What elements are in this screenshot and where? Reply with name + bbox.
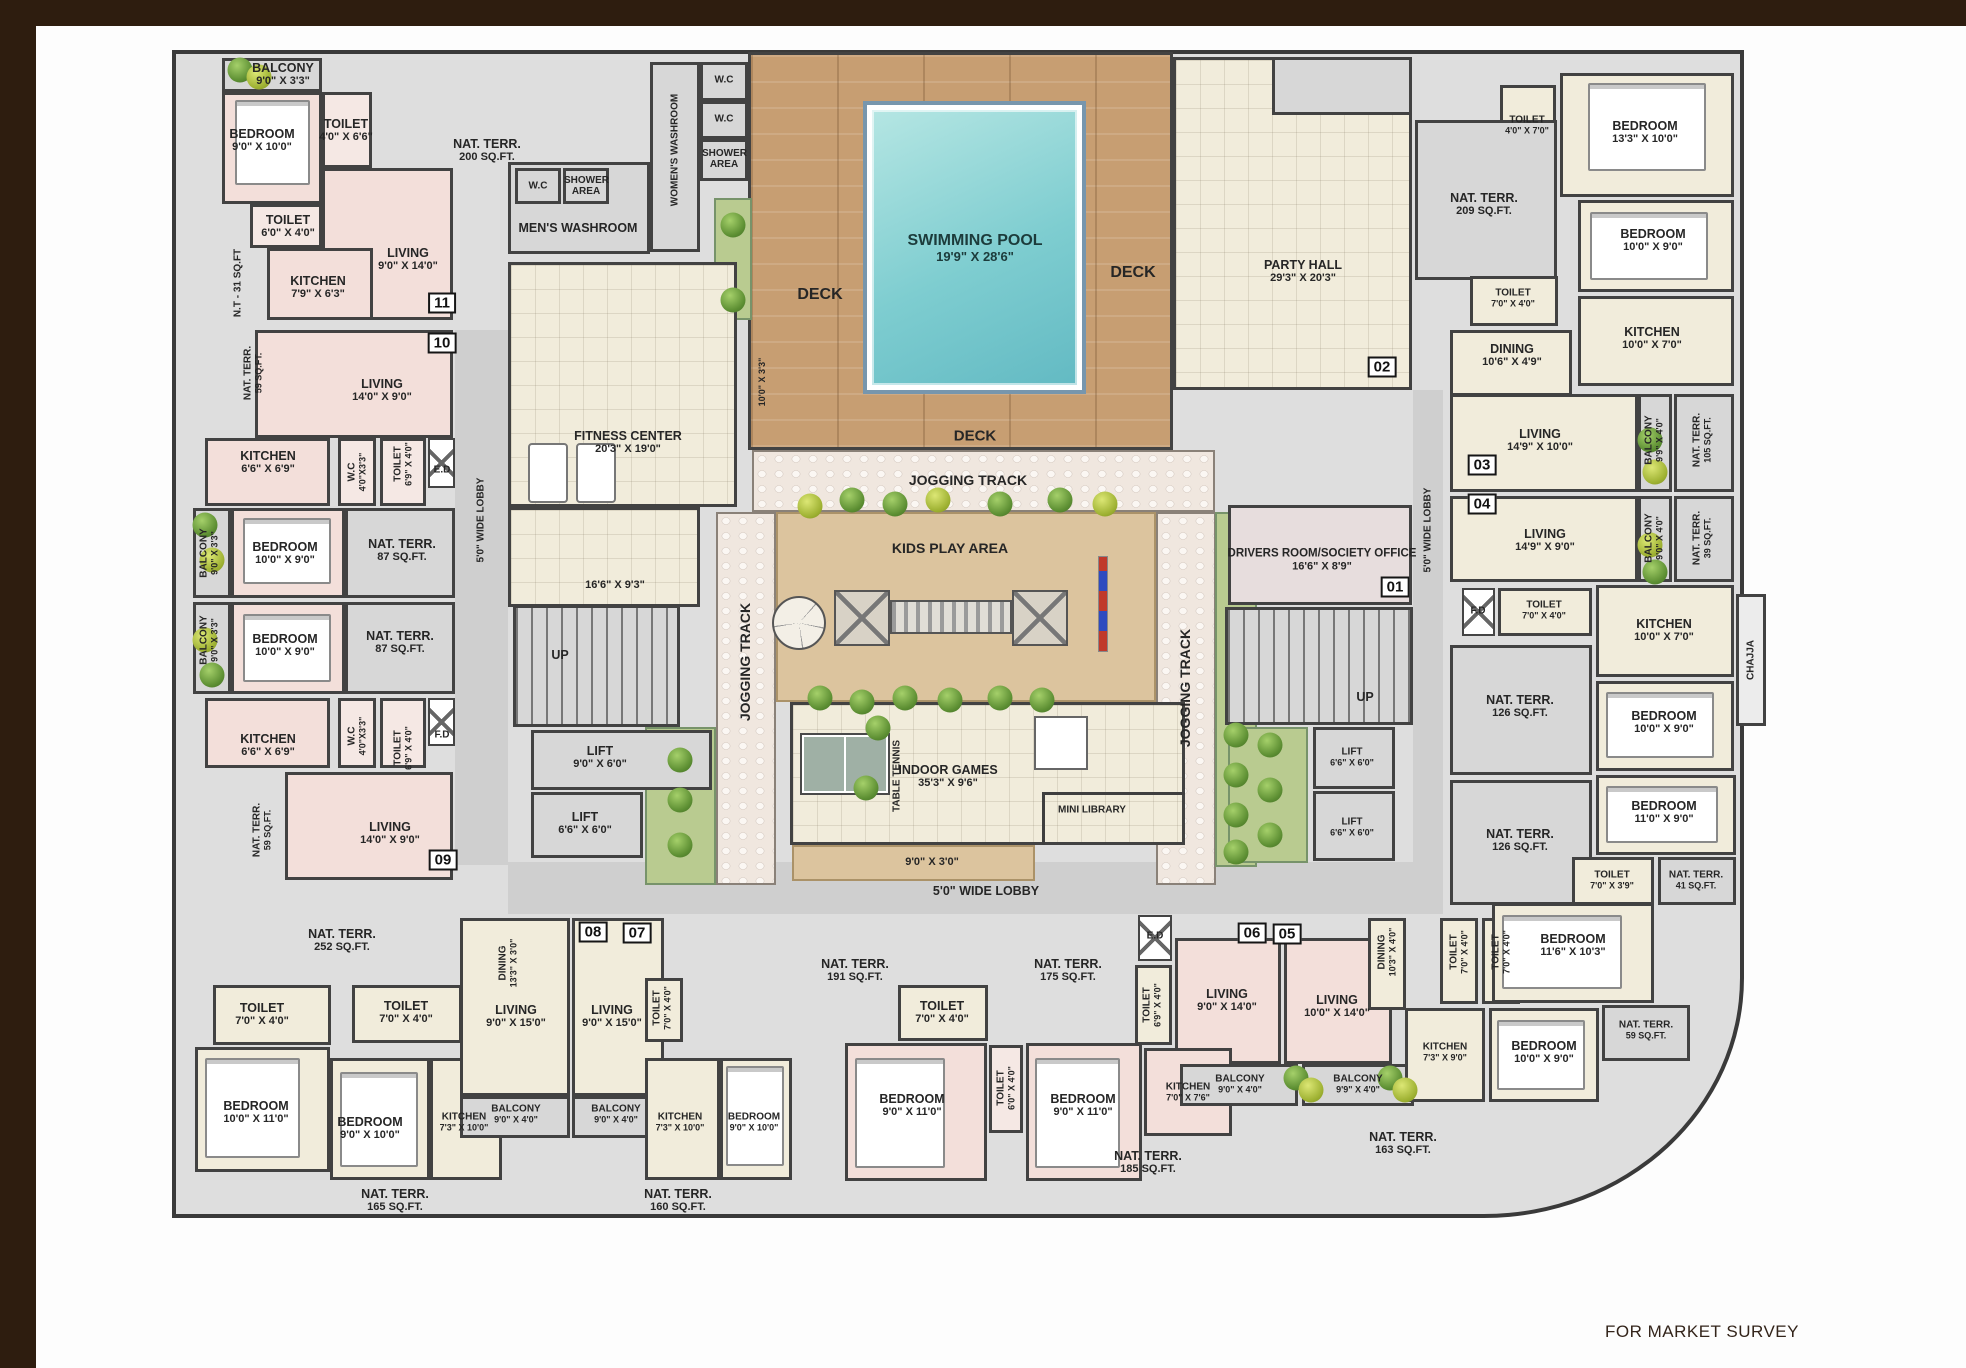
label-toilet: TOILET7'0" X 4'0" bbox=[1491, 287, 1535, 308]
plant-icon bbox=[1030, 688, 1055, 713]
label-nat-terr: NAT. TERR.59 SQ.FT. bbox=[251, 803, 272, 857]
label-toilet: TOILET7'0" X 4'0" bbox=[915, 999, 969, 1025]
label-nat-terr: NAT. TERR.209 SQ.FT. bbox=[1450, 191, 1518, 217]
label-kitchen: KITCHEN7'9" X 6'3" bbox=[290, 274, 346, 300]
plant-icon bbox=[926, 488, 951, 513]
label-living: LIVING10'0" X 14'0" bbox=[1304, 993, 1370, 1019]
label-nat-terr: NAT. TERR.59 SQ.FT. bbox=[1619, 1019, 1673, 1040]
label-living: LIVING14'9" X 10'0" bbox=[1507, 427, 1573, 453]
label-bedroom: BEDROOM9'0" X 10'0" bbox=[728, 1111, 780, 1132]
plant-icon bbox=[1258, 733, 1283, 758]
label-bedroom: BEDROOM10'0" X 9'0" bbox=[1511, 1039, 1576, 1065]
plant-icon bbox=[798, 494, 823, 519]
label-lift: LIFT6'6" X 6'0" bbox=[1330, 816, 1374, 837]
label-kitchen: KITCHEN10'0" X 7'0" bbox=[1622, 325, 1682, 351]
spiral-slide-icon bbox=[772, 596, 826, 650]
label-lift: LIFT6'6" X 6'0" bbox=[558, 810, 612, 836]
plant-icon bbox=[866, 716, 891, 741]
plant-icon bbox=[854, 776, 879, 801]
label-party-hall: PARTY HALL29'3" X 20'3" bbox=[1264, 258, 1342, 284]
label-nat-terr: NAT. TERR.87 SQ.FT. bbox=[368, 537, 436, 563]
label-up: UP bbox=[1356, 690, 1373, 704]
unit-badge-03: 03 bbox=[1468, 455, 1497, 476]
label-nat-terr: NAT. TERR.185 SQ.FT. bbox=[1114, 1149, 1182, 1175]
plant-icon bbox=[1224, 840, 1249, 865]
label-toilet: TOILET4'0" X 6'6" bbox=[319, 117, 373, 143]
label-mini-library: MINI LIBRARY bbox=[1058, 804, 1126, 815]
label-balcony: BALCONY9'0" X 4'0" bbox=[491, 1103, 540, 1124]
label-bedroom: BEDROOM11'0" X 9'0" bbox=[1631, 799, 1696, 825]
party-hall-terrace-notch bbox=[1272, 57, 1412, 115]
label-living: LIVING14'0" X 9'0" bbox=[352, 377, 412, 403]
label-toilet: TOILET6'0" X 4'0" bbox=[261, 213, 315, 239]
label-shower-area: SHOWER AREA bbox=[702, 148, 746, 170]
label-nat-terr: NAT. TERR.126 SQ.FT. bbox=[1486, 693, 1554, 719]
label-bedroom: BEDROOM9'0" X 10'0" bbox=[229, 127, 294, 153]
plant-icon bbox=[893, 686, 918, 711]
label-toilet: TOILET7'0" X 4'0" bbox=[1522, 599, 1566, 620]
label-balcony: BALCONY9'9" X 4'0" bbox=[1643, 415, 1664, 464]
label-fd: F.D bbox=[435, 729, 450, 740]
label-drivers-room: DRIVERS ROOM/SOCIETY OFFICE16'6" X 8'9" bbox=[1228, 547, 1417, 572]
label-indoor-games: INDOOR GAMES35'3" X 9'6" bbox=[898, 763, 997, 789]
unit-badge-10: 10 bbox=[428, 333, 457, 354]
label-bedroom: BEDROOM10'0" X 9'0" bbox=[1620, 227, 1685, 253]
label-bedroom: BEDROOM9'0" X 11'0" bbox=[879, 1092, 944, 1118]
label-wc: W.C bbox=[715, 74, 734, 85]
label-kids-play-area: KIDS PLAY AREA bbox=[892, 541, 1008, 557]
plant-icon bbox=[721, 213, 746, 238]
label-dining: DINING10'6" X 4'9" bbox=[1482, 342, 1542, 368]
seesaw-icon bbox=[1098, 556, 1108, 652]
play-tower-icon bbox=[834, 590, 890, 646]
label-nat-terr: NAT. TERR.160 SQ.FT. bbox=[644, 1187, 712, 1213]
label-lift: LIFT6'6" X 6'0" bbox=[1330, 746, 1374, 767]
plant-icon bbox=[1224, 763, 1249, 788]
label-toilet: TOILET6'9" X 4'0" bbox=[392, 442, 413, 486]
label-toilet: TOILET7'0" X 4'0" bbox=[235, 1001, 289, 1027]
plant-icon bbox=[808, 686, 833, 711]
label-kitchen: KITCHEN7'0" X 7'6" bbox=[1166, 1081, 1210, 1102]
unit-badge-11: 11 bbox=[428, 293, 456, 314]
plant-icon bbox=[668, 833, 693, 858]
label-fitness-annex-dim: 16'6" X 9'3" bbox=[585, 579, 645, 591]
label-living: LIVING9'0" X 14'0" bbox=[1197, 987, 1257, 1013]
label-up: UP bbox=[551, 648, 568, 662]
label-toilet: TOILET4'0" X 7'0" bbox=[1505, 114, 1549, 135]
label-toilet: TOILET6'9" X 4'0" bbox=[1141, 983, 1162, 1027]
label-lobby: 5'0" WIDE LOBBY bbox=[933, 884, 1039, 898]
label-nat-terr: NAT. TERR.126 SQ.FT. bbox=[1486, 827, 1554, 853]
label-living: LIVING14'0" X 9'0" bbox=[360, 820, 420, 846]
label-balcony: BALCONY9'9" X 4'0" bbox=[1333, 1073, 1382, 1094]
staircase-left bbox=[513, 605, 680, 727]
plant-icon bbox=[988, 686, 1013, 711]
label-jogging-track: JOGGING TRACK bbox=[1178, 629, 1194, 747]
plant-icon bbox=[1224, 723, 1249, 748]
plant-icon bbox=[668, 788, 693, 813]
label-dining: DINING13'3" X 3'0" bbox=[497, 939, 518, 988]
unit-badge-08: 08 bbox=[579, 922, 608, 943]
label-nat-terr: NAT. TERR.175 SQ.FT. bbox=[1034, 957, 1102, 983]
treadmill-icon bbox=[528, 443, 568, 503]
label-wc: W.C bbox=[529, 180, 548, 191]
label-deck: DECK bbox=[1110, 264, 1155, 282]
label-fitness-center: FITNESS CENTER20'3" X 19'0" bbox=[574, 429, 682, 455]
label-nat-terr: NAT. TERR.41 SQ.FT. bbox=[1669, 869, 1723, 890]
play-bridge-icon bbox=[890, 600, 1012, 634]
label-kitchen: KITCHEN6'6" X 6'9" bbox=[240, 732, 296, 758]
mini-library-wall bbox=[1042, 792, 1185, 845]
label-deck: DECK bbox=[954, 429, 997, 446]
label-nat-terr: NAT. TERR.163 SQ.FT. bbox=[1369, 1130, 1437, 1156]
plant-icon bbox=[1093, 492, 1118, 517]
label-nat-terr: NAT. TERR.105 SQ.FT. bbox=[1691, 413, 1712, 467]
label-strip-dim: 9'0" X 3'0" bbox=[905, 856, 959, 868]
plant-icon bbox=[721, 288, 746, 313]
label-wc: W.C bbox=[715, 113, 734, 124]
label-nat-terr: NAT. TERR.252 SQ.FT. bbox=[308, 927, 376, 953]
label-kitchen: KITCHEN7'3" X 9'0" bbox=[1423, 1041, 1467, 1062]
label-lift: LIFT9'0" X 6'0" bbox=[573, 744, 627, 770]
label-nat-terr: NAT. TERR.191 SQ.FT. bbox=[821, 957, 889, 983]
label-toilet: TOILET6'9" X 4'0" bbox=[392, 726, 413, 770]
label-toilet: TOILET7'0" X 4'0" bbox=[379, 999, 433, 1025]
label-jogging-track: JOGGING TRACK bbox=[909, 473, 1027, 489]
unit-badge-06: 06 bbox=[1238, 923, 1267, 944]
duct-ed bbox=[428, 438, 455, 488]
label-ed: E.D bbox=[1147, 930, 1164, 941]
games-table bbox=[1034, 716, 1088, 770]
label-living: LIVING14'9" X 9'0" bbox=[1515, 527, 1575, 553]
unit-badge-04: 04 bbox=[1468, 494, 1497, 515]
label-bedroom: BEDROOM10'0" X 9'0" bbox=[252, 632, 317, 658]
label-balcony: BALCONY9'0" X 3'3" bbox=[252, 61, 314, 87]
label-bedroom: BEDROOM10'0" X 11'0" bbox=[223, 1099, 288, 1125]
label-niche-dim: 10'0" X 3'3" bbox=[757, 358, 767, 407]
label-lobby: 5'0" WIDE LOBBY bbox=[1422, 488, 1433, 573]
label-dining: DINING10'3" X 4'0" bbox=[1376, 928, 1397, 977]
plant-icon bbox=[1258, 778, 1283, 803]
plant-icon bbox=[938, 688, 963, 713]
plant-icon bbox=[883, 492, 908, 517]
label-toilet: TOILET7'0" X 3'9" bbox=[1590, 869, 1634, 890]
label-shower-area: SHOWER AREA bbox=[564, 175, 608, 197]
label-nt-31: N.T - 31 SQ.FT bbox=[232, 249, 243, 317]
label-toilet: TOILET7'0" X 4'0" bbox=[1448, 930, 1469, 974]
plant-icon bbox=[668, 748, 693, 773]
plant-icon bbox=[200, 663, 225, 688]
label-bedroom: BEDROOM9'0" X 10'0" bbox=[337, 1115, 402, 1141]
plant-icon bbox=[1048, 488, 1073, 513]
frame-top-bar bbox=[0, 0, 1966, 26]
plant-icon bbox=[1299, 1078, 1324, 1103]
label-lobby: 5'0" WIDE LOBBY bbox=[475, 478, 486, 563]
unit-badge-09: 09 bbox=[429, 850, 458, 871]
staircase-right bbox=[1225, 607, 1413, 725]
plant-icon bbox=[988, 492, 1013, 517]
plant-icon bbox=[1643, 560, 1668, 585]
label-toilet: TOILET6'0" X 4'0" bbox=[995, 1066, 1016, 1110]
unit-badge-02: 02 bbox=[1368, 357, 1397, 378]
play-tower-icon bbox=[1012, 590, 1068, 646]
market-survey-note: FOR MARKET SURVEY bbox=[1605, 1322, 1799, 1342]
plant-icon bbox=[840, 488, 865, 513]
label-wc: W.C4'0"X3'3" bbox=[346, 453, 367, 492]
label-living: LIVING9'0" X 15'0" bbox=[486, 1003, 546, 1029]
label-nat-terr: NAT. TERR.39 SQ.FT. bbox=[1691, 511, 1712, 565]
label-fd: F.D bbox=[1471, 605, 1486, 616]
unit-badge-01: 01 bbox=[1381, 577, 1410, 598]
label-living: LIVING9'0" X 14'0" bbox=[378, 246, 438, 272]
label-bedroom: BEDROOM11'6" X 10'3" bbox=[1540, 932, 1605, 958]
label-kitchen: KITCHEN7'3" X 10'0" bbox=[656, 1111, 705, 1132]
label-bedroom: BEDROOM13'3" X 10'0" bbox=[1612, 119, 1678, 145]
plant-icon bbox=[850, 690, 875, 715]
label-swimming-pool: SWIMMING POOL19'9" X 28'6" bbox=[907, 232, 1042, 264]
label-toilet: TOILET7'0" X 4'0" bbox=[1490, 930, 1511, 974]
label-balcony: BALCONY9'0" X 3'3" bbox=[198, 528, 219, 577]
label-nat-terr: NAT. TERR.165 SQ.FT. bbox=[361, 1187, 429, 1213]
plant-icon bbox=[1393, 1078, 1418, 1103]
plant-icon bbox=[1224, 803, 1249, 828]
lobby-left bbox=[455, 330, 508, 865]
label-mens-washroom: MEN'S WASHROOM bbox=[519, 221, 638, 235]
label-kitchen: KITCHEN10'0" X 7'0" bbox=[1634, 617, 1694, 643]
plant-icon bbox=[1258, 823, 1283, 848]
frame-left-bar bbox=[0, 0, 36, 1368]
label-nat-terr: NAT. TERR.200 SQ.FT. bbox=[453, 137, 521, 163]
room-fitness-annex bbox=[508, 507, 700, 607]
label-living: LIVING9'0" X 15'0" bbox=[582, 1003, 642, 1029]
label-nat-terr: NAT. TERR.87 SQ.FT. bbox=[366, 629, 434, 655]
label-jogging-track: JOGGING TRACK bbox=[738, 603, 754, 721]
label-bedroom: BEDROOM9'0" X 11'0" bbox=[1050, 1092, 1115, 1118]
label-nat-terr: NAT. TERR.59 SQ.FT. bbox=[242, 346, 263, 400]
label-balcony: BALCONY9'0" X 4'0" bbox=[1215, 1073, 1264, 1094]
label-bedroom: BEDROOM10'0" X 9'0" bbox=[252, 540, 317, 566]
label-womens-washroom: WOMEN'S WASHROOM bbox=[669, 94, 680, 206]
label-chajja: CHAJJA bbox=[1745, 640, 1756, 680]
label-balcony: BALCONY9'0" X 3'3" bbox=[198, 615, 219, 664]
label-kitchen: KITCHEN6'6" X 6'9" bbox=[240, 449, 296, 475]
label-deck: DECK bbox=[797, 286, 842, 304]
label-balcony: BALCONY9'0" X 4'0" bbox=[1643, 513, 1664, 562]
label-bedroom: BEDROOM10'0" X 9'0" bbox=[1631, 709, 1696, 735]
label-balcony: BALCONY9'0" X 4'0" bbox=[591, 1103, 640, 1124]
label-wc: W.C4'0"X3'3" bbox=[346, 717, 367, 756]
label-ed: E.D bbox=[434, 464, 451, 475]
unit-badge-05: 05 bbox=[1273, 924, 1302, 945]
unit-badge-07: 07 bbox=[623, 923, 652, 944]
label-toilet: TOILET7'0" X 4'0" bbox=[651, 986, 672, 1030]
lobby-right bbox=[1413, 390, 1443, 914]
label-kitchen: KITCHEN7'3" X 10'0" bbox=[440, 1111, 489, 1132]
